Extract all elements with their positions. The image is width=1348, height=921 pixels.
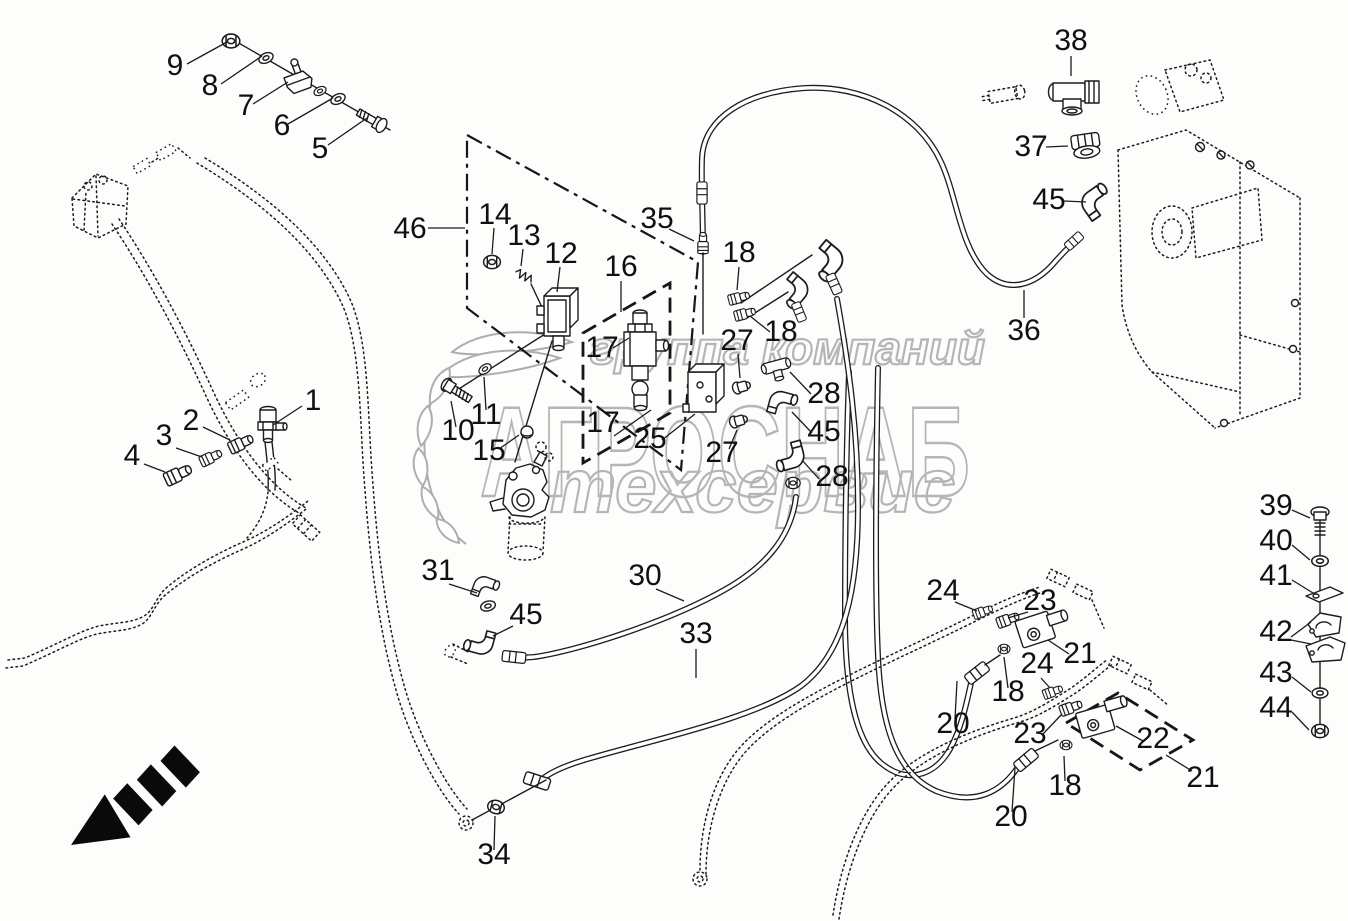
- hose-36: [702, 88, 1070, 285]
- top-right-fittings: [980, 81, 1117, 251]
- callout-label-31-24: 31: [421, 554, 454, 587]
- callout-label-5-4: 5: [312, 132, 329, 165]
- fitting-4: [163, 462, 194, 486]
- callout-label-38-30: 38: [1054, 24, 1087, 57]
- clamp-7: [279, 55, 315, 94]
- callout-leader-8-1: [221, 56, 262, 84]
- tee-valve-1: [258, 407, 287, 443]
- callout-leader-39-44: [1292, 510, 1310, 518]
- callout-label-16-9: 16: [604, 250, 637, 283]
- callout-label-42-47: 42: [1259, 615, 1292, 648]
- direction-arrow-icon: [55, 741, 211, 865]
- callout-label-23-34: 23: [1023, 584, 1056, 617]
- tank-dotted: [1118, 60, 1300, 428]
- hose-dotted-left: [6, 158, 473, 830]
- callout-label-11-22: 11: [470, 398, 501, 431]
- bolt-10: [439, 376, 474, 405]
- fitting-35: [698, 232, 708, 253]
- callout-label-33-27: 33: [679, 617, 712, 650]
- fitting-group-1-4: [163, 370, 320, 541]
- callout-leader-1-50: [273, 406, 302, 425]
- callout-label-13-7: 13: [507, 219, 540, 252]
- nut-18-b: [1060, 740, 1072, 749]
- callout-label-7-2: 7: [238, 89, 255, 122]
- washer-40: [1312, 556, 1329, 567]
- callout-label-6-3: 6: [274, 109, 291, 142]
- callout-leader-43-48: [1292, 677, 1311, 692]
- parts-diagram: группа компаний АГРОСНАБ техсервис: [0, 0, 1348, 921]
- callouts: 9876546141312163518182728452728171725101…: [124, 24, 1313, 871]
- callout-label-24-38: 24: [1020, 647, 1053, 680]
- callout-label-44-49: 44: [1259, 691, 1292, 724]
- callout-label-4-53: 4: [124, 439, 141, 472]
- fitting-2: [227, 433, 255, 455]
- callout-leader-41-46: [1292, 580, 1313, 593]
- plate-41: [1306, 587, 1343, 602]
- callout-label-27-13: 27: [720, 324, 753, 357]
- fitting-38: [1049, 81, 1100, 115]
- callout-leader-18-11: [737, 267, 739, 290]
- callout-label-24-33: 24: [926, 574, 959, 607]
- callout-label-36-29: 36: [1007, 314, 1040, 347]
- callout-leader-37-31: [1046, 146, 1068, 147]
- tank-screws: [1196, 143, 1299, 427]
- callout-label-45-15: 45: [807, 415, 840, 448]
- callout-label-45-32: 45: [1032, 183, 1065, 216]
- callout-leader-9-0: [187, 42, 227, 64]
- nut-14: [484, 255, 501, 268]
- callout-label-30-26: 30: [628, 559, 661, 592]
- callout-label-17-19: 17: [586, 406, 619, 439]
- callout-label-18-11: 18: [722, 236, 755, 269]
- callout-label-20-43: 20: [994, 800, 1027, 833]
- fitting-24-b: [1042, 684, 1064, 700]
- callout-label-9-0: 9: [167, 49, 184, 82]
- callout-leader-42-47: [1291, 622, 1311, 637]
- nut-44: [1312, 724, 1329, 737]
- fitting-24-a: [972, 604, 994, 620]
- motor-dotted: [72, 144, 190, 238]
- swivel-31: [471, 574, 501, 602]
- bolt-5: [354, 106, 389, 135]
- spring-13: [514, 268, 534, 284]
- callout-label-25-20: 25: [633, 422, 666, 455]
- callout-label-12-8: 12: [544, 237, 577, 270]
- nut-9: [222, 34, 240, 48]
- plug-15: [521, 426, 533, 438]
- callout-label-2-51: 2: [183, 404, 200, 437]
- callout-label-18-42: 18: [1048, 769, 1081, 802]
- callout-leader-42-47: [1291, 640, 1311, 644]
- callout-label-37-31: 37: [1014, 130, 1047, 163]
- callout-label-34-28: 34: [477, 838, 510, 871]
- callout-leader-44-49: [1292, 712, 1309, 730]
- callout-leader-14-6: [492, 228, 494, 254]
- callout-label-18-12: 18: [764, 315, 797, 348]
- callout-label-28-17: 28: [815, 460, 848, 493]
- callout-label-23-39: 23: [1013, 717, 1046, 750]
- callout-label-43-48: 43: [1259, 656, 1292, 689]
- callout-leader-40-45: [1292, 545, 1310, 560]
- nut-18-a: [998, 644, 1010, 653]
- callout-label-20-37: 20: [936, 707, 969, 740]
- callout-label-22-40: 22: [1136, 722, 1169, 755]
- callout-label-15-23: 15: [472, 434, 505, 467]
- callout-label-28-14: 28: [807, 377, 840, 410]
- callout-label-17-18: 17: [585, 331, 618, 364]
- watermark-line3: техсервис: [550, 444, 955, 529]
- clamp-stack: [1306, 507, 1345, 738]
- callout-leader-3-52: [176, 448, 202, 457]
- fitting-18-a: [727, 290, 750, 306]
- clamp-42: [1306, 613, 1345, 662]
- callout-label-46-5: 46: [393, 212, 426, 245]
- washer-43: [1312, 688, 1328, 698]
- callout-label-1-50: 1: [305, 384, 322, 417]
- callout-label-8-1: 8: [202, 69, 219, 102]
- callout-leader-5-4: [328, 118, 367, 145]
- callout-label-21-41: 21: [1186, 761, 1219, 794]
- callout-label-40-45: 40: [1259, 524, 1292, 557]
- callout-label-27-16: 27: [705, 436, 738, 469]
- cap-37: [1070, 132, 1101, 160]
- callout-label-35-10: 35: [640, 202, 673, 235]
- callout-leader-7-2: [253, 82, 288, 104]
- callout-leader-6-3: [288, 98, 333, 124]
- callout-leader-4-53: [144, 464, 165, 472]
- callout-label-45-25: 45: [509, 598, 542, 631]
- callout-label-21-35: 21: [1063, 637, 1096, 670]
- valve-22: [1074, 695, 1133, 738]
- nut-34: [486, 798, 506, 815]
- diagram-page: группа компаний АГРОСНАБ техсервис: [0, 0, 1348, 921]
- callout-label-41-46: 41: [1259, 559, 1292, 592]
- fitting-3: [198, 448, 223, 468]
- callout-label-3-52: 3: [156, 419, 173, 452]
- callout-label-39-44: 39: [1259, 489, 1292, 522]
- callout-leader-2-51: [203, 427, 230, 440]
